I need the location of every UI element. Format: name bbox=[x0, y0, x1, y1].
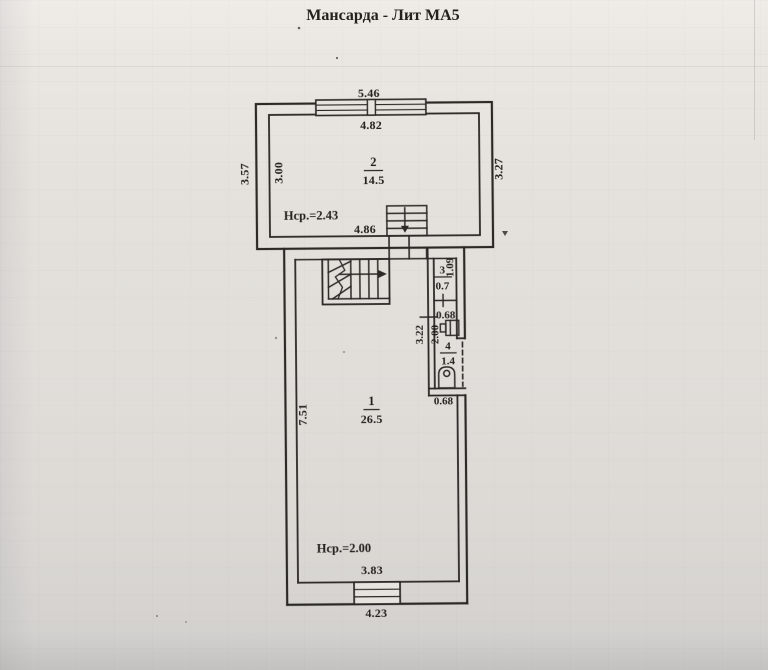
dim-left-outer: 3.57 bbox=[237, 163, 251, 185]
dim-bottom-outer: 4.23 bbox=[365, 606, 387, 620]
dim-right-outer: 3.27 bbox=[491, 158, 505, 180]
room2-area: 14.5 bbox=[363, 173, 385, 187]
dim-wc-bottom: 0.68 bbox=[434, 395, 454, 407]
room2-stairs bbox=[387, 206, 427, 236]
room1-area: 26.5 bbox=[361, 412, 383, 426]
room4-number: 4 bbox=[445, 340, 451, 352]
dim-hall-inner: 2.00 bbox=[429, 324, 441, 344]
dim-room2-bottom: 4.86 bbox=[354, 222, 376, 236]
room1-stairs bbox=[322, 259, 389, 305]
stray-triangle-mark bbox=[502, 231, 508, 236]
room2-height-note: Нср.=2.43 bbox=[284, 208, 338, 222]
dim-room3-side: 1.09 bbox=[444, 257, 456, 277]
page-title: Мансарда - Лит МА5 bbox=[306, 7, 459, 24]
room1-height-note: Нср.=2.00 bbox=[317, 541, 371, 555]
room4-area: 1.4 bbox=[441, 355, 455, 367]
room2-window bbox=[316, 99, 426, 115]
room1-window bbox=[354, 582, 400, 604]
scanned-floorplan-page: Мансарда - Лит МА5 bbox=[0, 0, 768, 670]
dim-left-inner: 3.00 bbox=[271, 162, 285, 184]
room3-area: 0.7 bbox=[436, 280, 450, 292]
dim-room1-left: 7.51 bbox=[295, 404, 309, 426]
room1-number: 1 bbox=[368, 394, 374, 408]
dim-top-outer: 5.46 bbox=[358, 86, 380, 100]
room2-number: 2 bbox=[370, 155, 376, 169]
dim-hall-left: 3.22 bbox=[414, 324, 426, 344]
toilet-icon bbox=[439, 367, 455, 388]
dim-sink-width: 0.68 bbox=[436, 309, 456, 321]
floorplan-drawing: Мансарда - Лит МА5 bbox=[0, 0, 768, 670]
dim-top-inner: 4.82 bbox=[360, 118, 382, 132]
dim-bottom-inner: 3.83 bbox=[361, 563, 383, 577]
